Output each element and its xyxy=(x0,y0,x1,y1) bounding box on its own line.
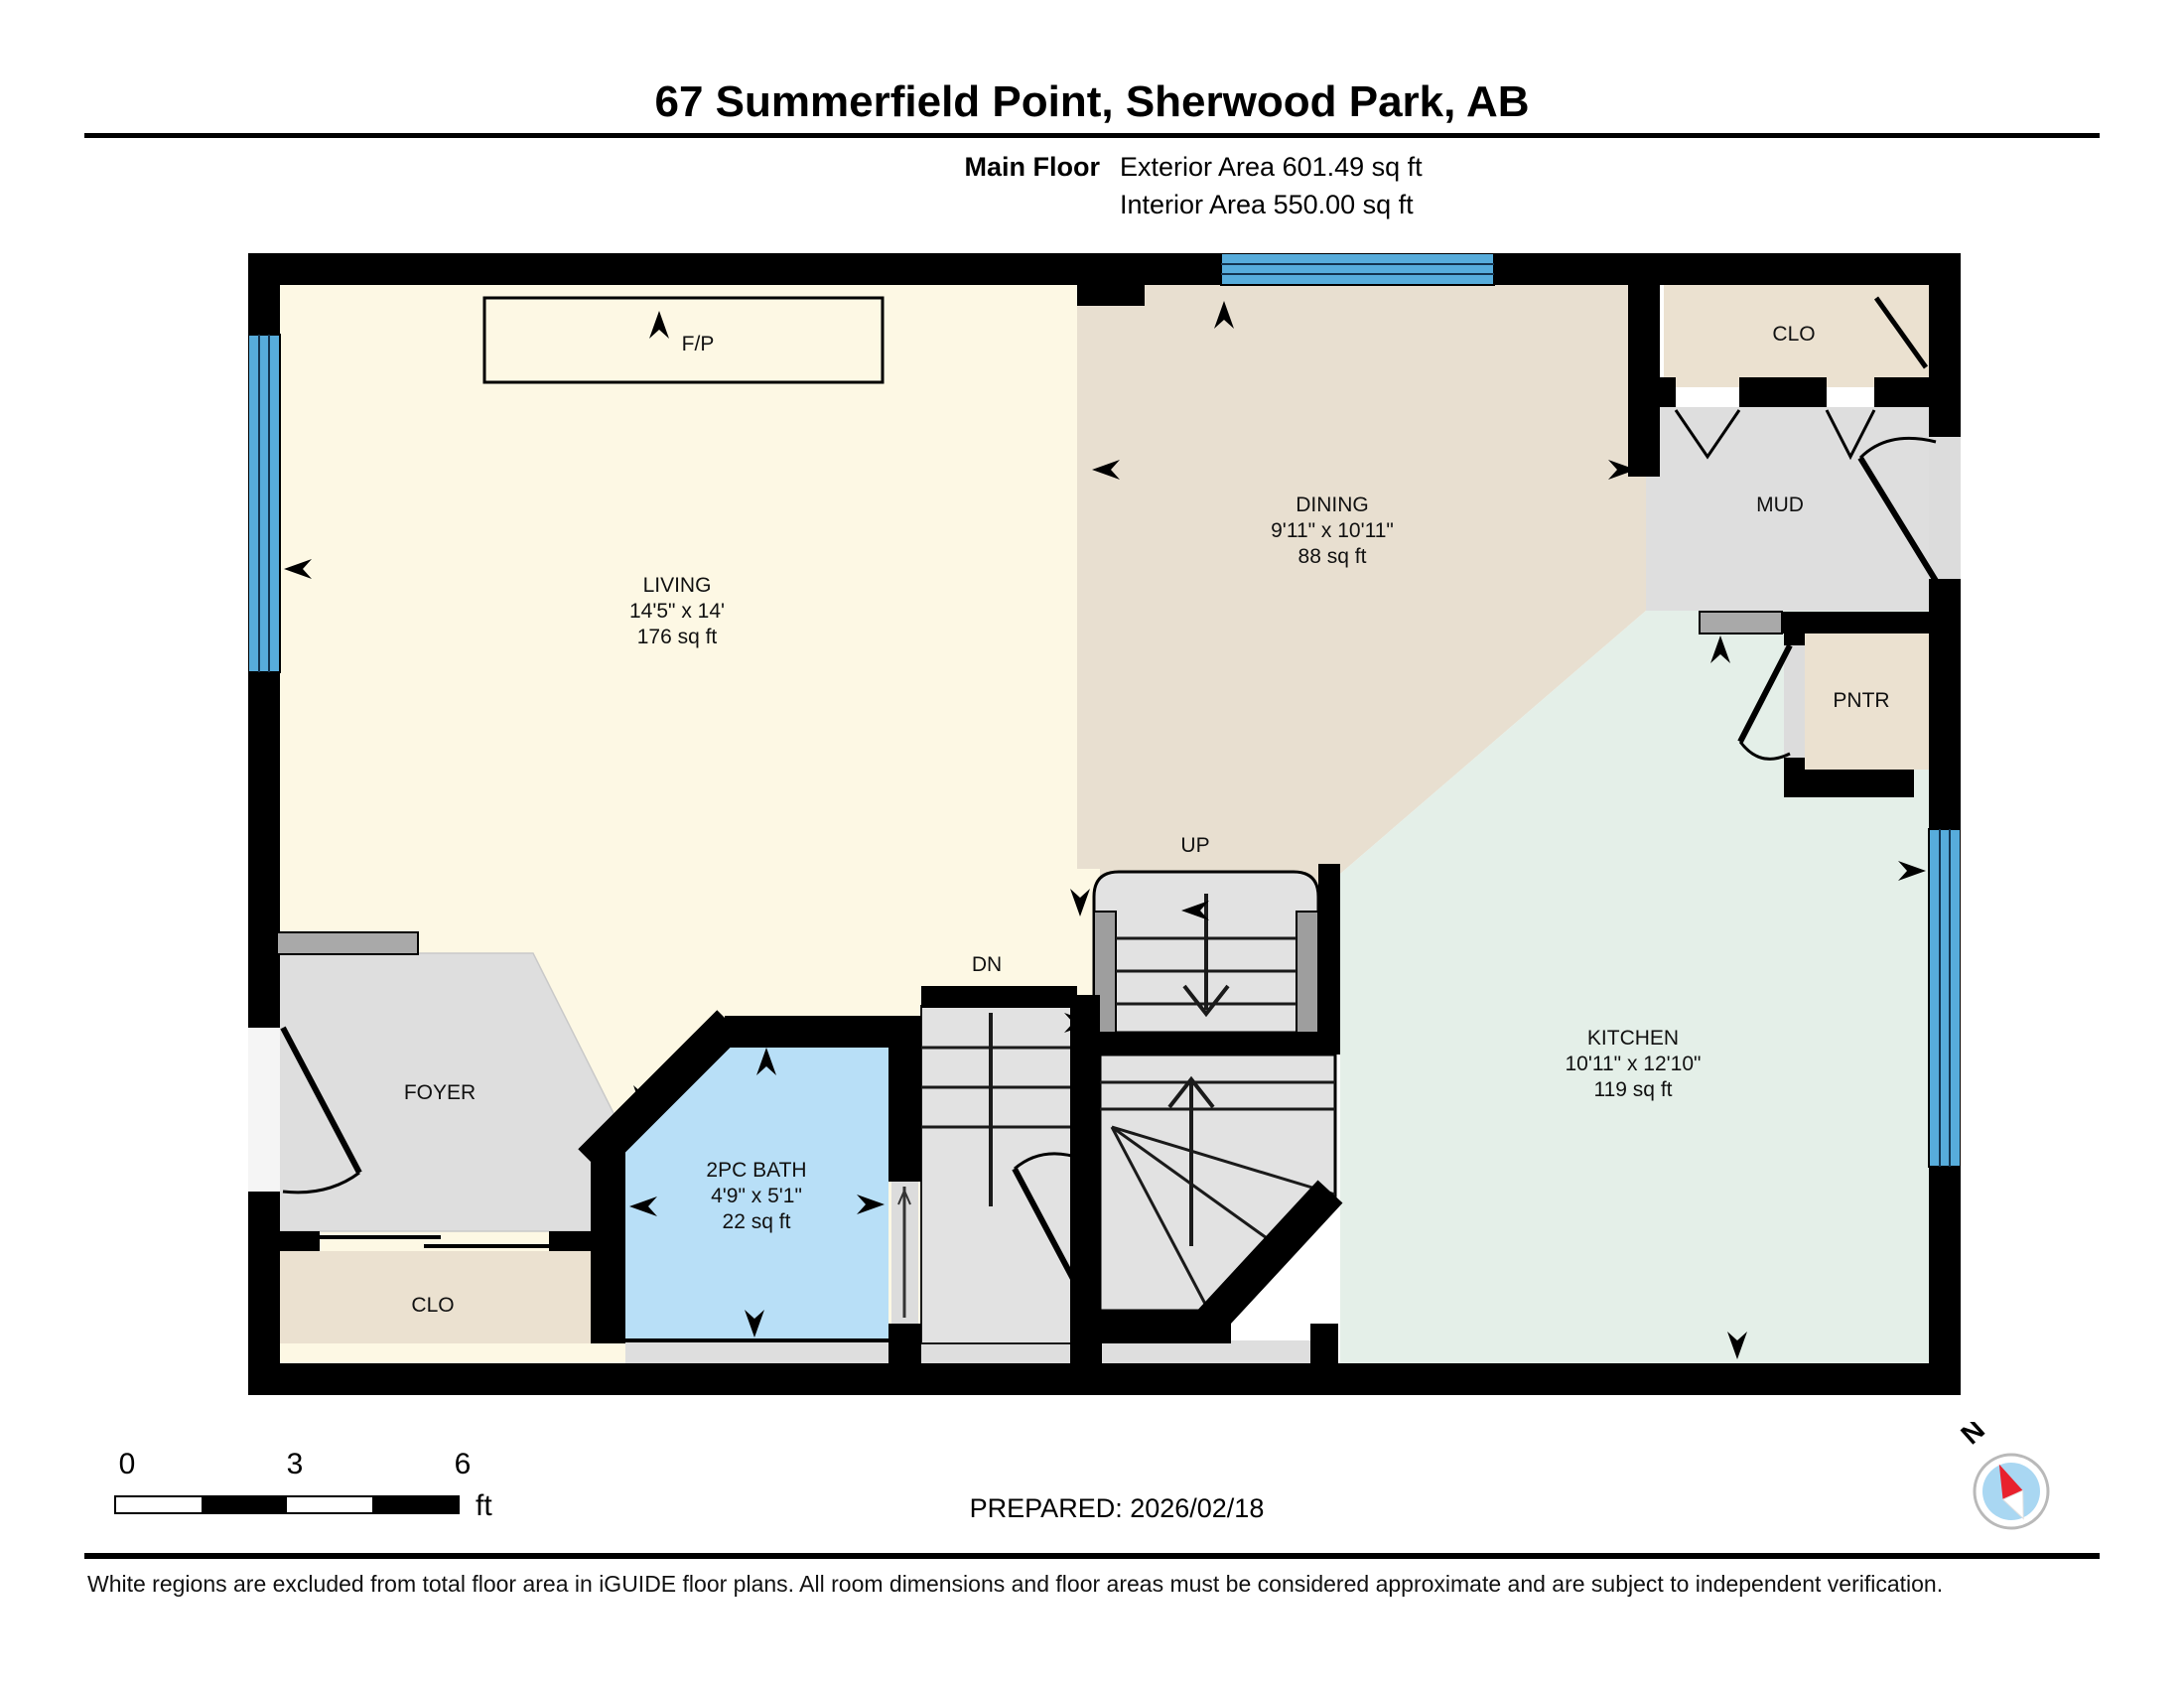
room-name: KITCHEN xyxy=(1566,1026,1702,1052)
scale-segment xyxy=(116,1497,202,1512)
room-label-bath: 2PC BATH 4'9" x 5'1" 22 sq ft xyxy=(706,1158,806,1235)
scale-mid: 3 xyxy=(287,1448,304,1481)
pantry-door-opening xyxy=(1784,645,1805,758)
scale-segment xyxy=(202,1497,287,1512)
room-area: 22 sq ft xyxy=(706,1209,806,1235)
scale-start: 0 xyxy=(119,1448,136,1481)
stair-label-up: UP xyxy=(1180,833,1209,859)
front-door-opening xyxy=(248,1028,280,1192)
room-area: 119 sq ft xyxy=(1566,1077,1702,1103)
room-dims: 14'5" x 14' xyxy=(629,599,725,625)
room-area: 88 sq ft xyxy=(1271,544,1394,570)
scale-end: 6 xyxy=(455,1448,472,1481)
disclaimer-text: White regions are excluded from total fl… xyxy=(87,1571,2122,1598)
room-label-living: LIVING 14'5" x 14' 176 sq ft xyxy=(629,573,725,650)
floor-name-label: Main Floor xyxy=(965,152,1101,183)
room-name: DINING xyxy=(1271,492,1394,518)
page-title: 67 Summerfield Point, Sherwood Park, AB xyxy=(654,77,1529,127)
room-label-kitchen: KITCHEN 10'11" x 12'10" 119 sq ft xyxy=(1566,1026,1702,1103)
compass-rose: N xyxy=(1946,1422,2075,1551)
room-label-mud: MUD xyxy=(1756,492,1804,518)
scale-segment xyxy=(287,1497,372,1512)
exterior-area-text: Exterior Area 601.49 sq ft xyxy=(1120,152,1423,183)
kitchen-window-icon xyxy=(1929,829,1961,1167)
living-window-icon xyxy=(248,335,280,672)
foyer-shelf xyxy=(277,932,418,954)
fireplace-label: F/P xyxy=(682,332,715,357)
stair-label-down: DN xyxy=(972,952,1002,978)
room-label-closet-main: CLO xyxy=(411,1293,454,1319)
floor-plan-canvas xyxy=(248,253,1961,1395)
compass-north-label: N xyxy=(1955,1422,1990,1450)
dining-window-icon xyxy=(1221,253,1494,285)
bath-pocket-door xyxy=(891,1182,918,1324)
floorplan-page: 67 Summerfield Point, Sherwood Park, AB … xyxy=(0,0,2184,1688)
room-label-pantry: PNTR xyxy=(1833,688,1889,714)
scale-segment xyxy=(372,1497,458,1512)
header-divider xyxy=(84,133,2100,138)
scale-bar: 0 3 6 ft xyxy=(114,1448,630,1527)
scale-bar-segments xyxy=(114,1495,460,1514)
room-label-dining: DINING 9'11" x 10'11" 88 sq ft xyxy=(1271,492,1394,570)
room-name: 2PC BATH xyxy=(706,1158,806,1184)
room-dims: 4'9" x 5'1" xyxy=(706,1184,806,1209)
scale-unit: ft xyxy=(476,1489,492,1523)
interior-area-text: Interior Area 550.00 sq ft xyxy=(1120,190,1414,220)
room-label-closet-mud: CLO xyxy=(1772,322,1815,348)
mud-door-opening xyxy=(1929,437,1961,579)
prepared-date-text: PREPARED: 2026/02/18 xyxy=(970,1493,1265,1524)
room-dims: 10'11" x 12'10" xyxy=(1566,1052,1702,1077)
room-label-foyer: FOYER xyxy=(404,1080,476,1106)
room-area: 176 sq ft xyxy=(629,625,725,650)
footer-divider xyxy=(84,1553,2100,1559)
room-dims: 9'11" x 10'11" xyxy=(1271,518,1394,544)
mud-bench xyxy=(1700,612,1782,633)
room-name: LIVING xyxy=(629,573,725,599)
